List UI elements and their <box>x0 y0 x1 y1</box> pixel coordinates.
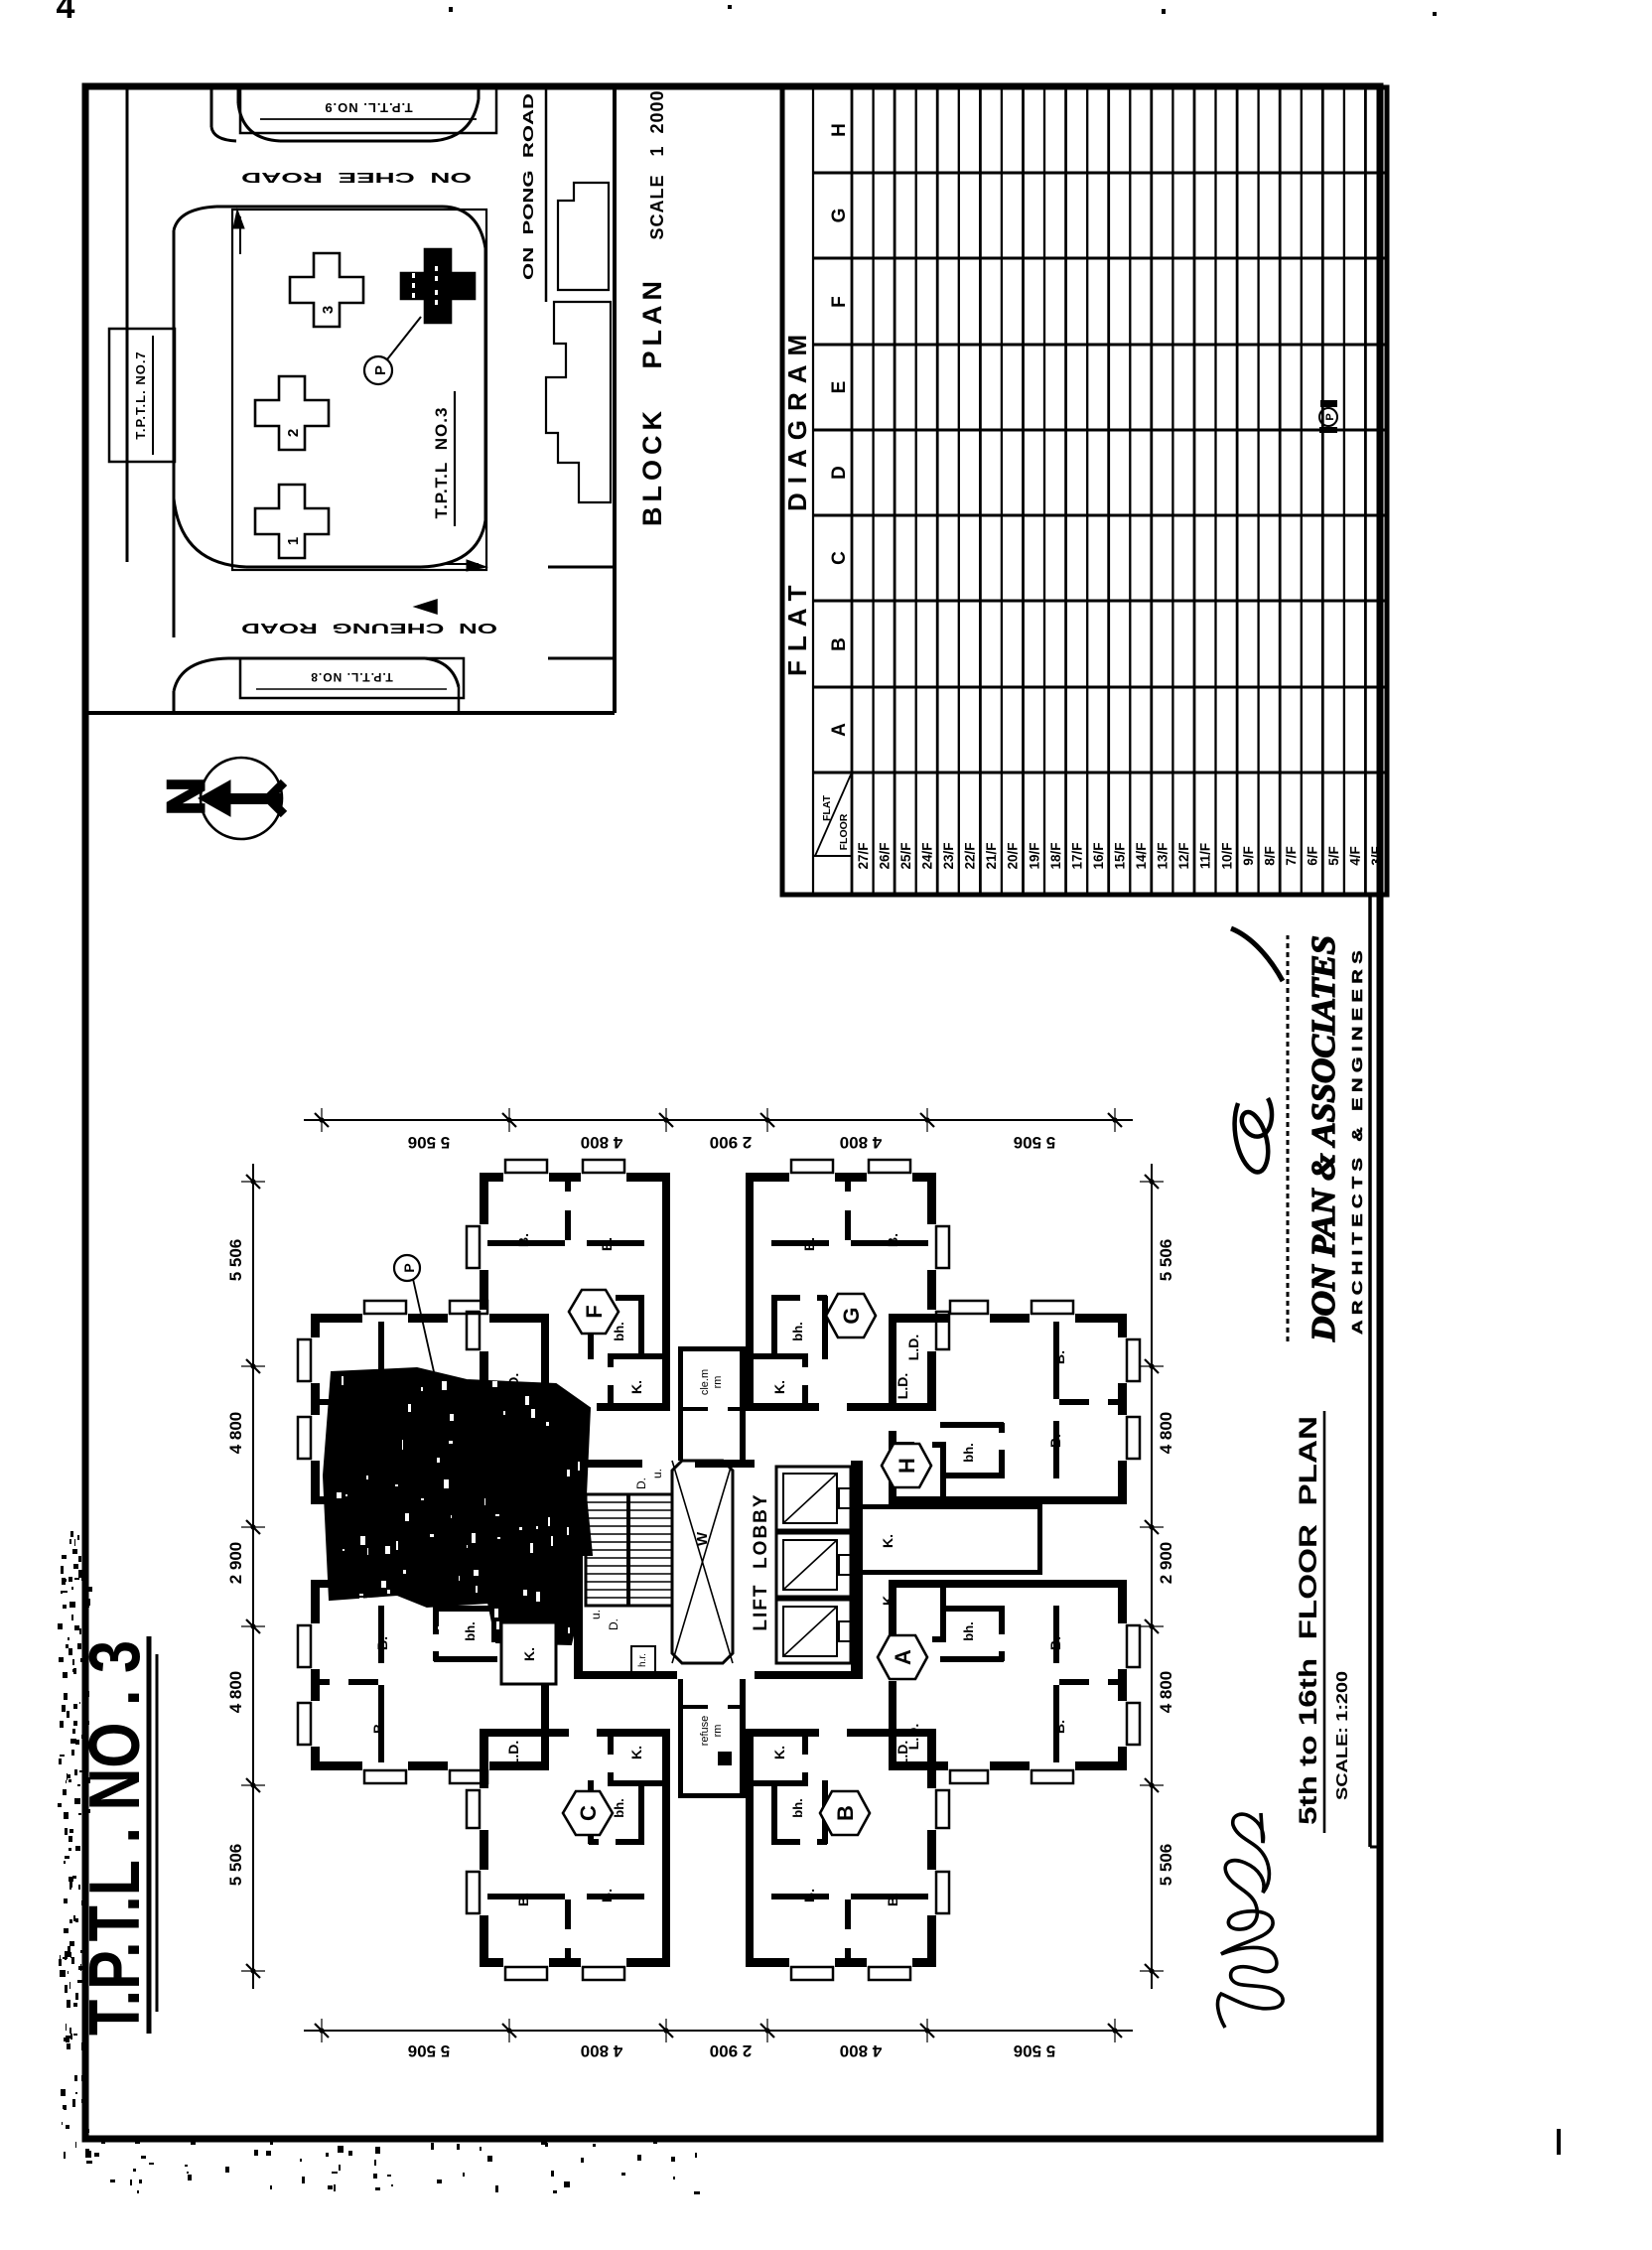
svg-text:K.: K. <box>521 1647 537 1661</box>
svg-text:14/F: 14/F <box>1134 842 1149 869</box>
svg-text:SCALE: 1:200: SCALE: 1:200 <box>1334 1671 1351 1800</box>
svg-text:B.: B. <box>801 1889 817 1902</box>
svg-text:5 506: 5 506 <box>226 1844 245 1887</box>
svg-text:L.D.: L.D. <box>905 1724 921 1750</box>
svg-text:4/F: 4/F <box>1348 846 1363 866</box>
svg-text:7/F: 7/F <box>1284 846 1299 866</box>
svg-text:K.: K. <box>628 1746 644 1759</box>
svg-text:K.: K. <box>628 1380 644 1394</box>
svg-text:20/F: 20/F <box>1006 842 1021 869</box>
svg-text:h.r.: h.r. <box>637 1653 648 1667</box>
svg-text:bh.: bh. <box>790 1798 805 1818</box>
svg-text:10/F: 10/F <box>1219 842 1234 869</box>
svg-text:ARCHITECTS & ENGINEERS: ARCHITECTS & ENGINEERS <box>1349 945 1366 1335</box>
svg-text:F: F <box>829 296 850 308</box>
svg-text:D.: D. <box>634 1477 648 1489</box>
svg-text:4 800: 4 800 <box>840 2041 883 2060</box>
svg-text:16/F: 16/F <box>1091 842 1106 869</box>
svg-text:u.: u. <box>650 1469 664 1478</box>
svg-text:E: E <box>829 381 850 394</box>
svg-text:8/F: 8/F <box>1262 846 1277 866</box>
svg-text:T.P.T.L. NO.8: T.P.T.L. NO.8 <box>310 670 392 684</box>
svg-text:B.: B. <box>1051 1720 1067 1734</box>
svg-text:ON PONG ROAD: ON PONG ROAD <box>520 93 537 280</box>
svg-text:P: P <box>372 365 389 375</box>
svg-text:H: H <box>895 1458 919 1474</box>
svg-text:2 900: 2 900 <box>1157 1542 1175 1585</box>
svg-text:B.: B. <box>374 1636 390 1650</box>
svg-text:23/F: 23/F <box>941 842 956 869</box>
svg-text:T.P.T.L. NO.7: T.P.T.L. NO.7 <box>133 351 148 439</box>
svg-text:22/F: 22/F <box>963 842 978 869</box>
svg-text:K.: K. <box>771 1746 787 1759</box>
svg-text:bh.: bh. <box>612 1798 626 1818</box>
svg-text:5 506: 5 506 <box>408 2041 451 2060</box>
svg-text:A: A <box>891 1649 915 1665</box>
svg-text:K.: K. <box>771 1380 787 1394</box>
svg-text:4 800: 4 800 <box>840 1133 883 1152</box>
svg-text:2 900: 2 900 <box>226 1542 245 1585</box>
svg-text:B.: B. <box>1047 1434 1063 1448</box>
svg-text:5 506: 5 506 <box>1014 2041 1056 2060</box>
svg-text:bh.: bh. <box>961 1443 976 1463</box>
svg-text:5 506: 5 506 <box>1157 1239 1175 1282</box>
svg-text:3: 3 <box>320 306 337 314</box>
svg-text:4 800: 4 800 <box>226 1412 245 1455</box>
svg-text:4: 4 <box>57 0 75 26</box>
svg-text:A: A <box>829 723 850 737</box>
svg-text:DIAGRAM: DIAGRAM <box>782 326 812 511</box>
svg-text:rm: rm <box>712 1376 724 1389</box>
svg-text:H: H <box>829 123 850 137</box>
svg-text:27/F: 27/F <box>856 842 871 869</box>
svg-text:FLAT: FLAT <box>782 577 812 677</box>
svg-text:ON CHEUNG ROAD: ON CHEUNG ROAD <box>241 620 497 636</box>
svg-text:5 506: 5 506 <box>1014 1133 1056 1152</box>
svg-text:B.: B. <box>515 1893 531 1906</box>
svg-text:24/F: 24/F <box>920 842 935 869</box>
svg-text:B.: B. <box>599 1889 615 1902</box>
svg-text:T.P.T.L. NO.9: T.P.T.L. NO.9 <box>324 100 412 115</box>
svg-text:4 800: 4 800 <box>1157 1412 1175 1455</box>
svg-text:4 800: 4 800 <box>581 1133 623 1152</box>
svg-text:B: B <box>829 637 850 651</box>
svg-text:K.: K. <box>880 1534 895 1548</box>
svg-text:B.: B. <box>801 1237 817 1251</box>
svg-text:B.: B. <box>370 1720 386 1734</box>
svg-text:BLOCK PLAN: BLOCK PLAN <box>637 276 667 526</box>
svg-text:SCALE 1 2000: SCALE 1 2000 <box>647 89 667 239</box>
svg-text:18/F: 18/F <box>1048 842 1063 869</box>
svg-text:2 900: 2 900 <box>710 2041 753 2060</box>
svg-text:B.: B. <box>599 1237 615 1251</box>
svg-text:12/F: 12/F <box>1176 842 1191 869</box>
svg-text:L.D.: L.D. <box>505 1741 521 1766</box>
svg-text:P: P <box>1324 413 1336 420</box>
svg-text:B.: B. <box>1051 1350 1067 1364</box>
svg-text:T.P.T.L . NO . 3: T.P.T.L . NO . 3 <box>75 1640 155 2036</box>
svg-text:B.: B. <box>885 1893 900 1906</box>
svg-text:cle.m: cle.m <box>699 1369 711 1395</box>
svg-text:5/F: 5/F <box>1326 846 1341 866</box>
svg-text:6/F: 6/F <box>1306 846 1320 866</box>
svg-text:FLAT: FLAT <box>821 794 833 821</box>
svg-text:LIFT LOBBY: LIFT LOBBY <box>751 1492 771 1630</box>
svg-text:bh.: bh. <box>961 1621 976 1641</box>
svg-text:ON CHEE ROAD: ON CHEE ROAD <box>241 169 472 186</box>
svg-text:F: F <box>582 1305 607 1318</box>
svg-text:5 506: 5 506 <box>1157 1844 1175 1887</box>
svg-text:u.: u. <box>589 1610 603 1619</box>
svg-text:26/F: 26/F <box>877 842 892 869</box>
svg-text:19/F: 19/F <box>1027 842 1041 869</box>
svg-text:3/F: 3/F <box>1369 846 1384 866</box>
svg-text:DON PAN & ASSOCIATES: DON PAN & ASSOCIATES <box>1306 935 1342 1342</box>
svg-text:13/F: 13/F <box>1156 842 1170 869</box>
svg-text:4 800: 4 800 <box>226 1671 245 1714</box>
svg-text:W: W <box>694 1531 711 1546</box>
svg-text:9/F: 9/F <box>1241 846 1256 866</box>
svg-text:T.P.T.L NO.3: T.P.T.L NO.3 <box>432 407 451 519</box>
svg-text:B: B <box>833 1805 858 1821</box>
svg-text:FLOOR: FLOOR <box>838 813 850 850</box>
svg-text:2: 2 <box>285 429 302 437</box>
svg-text:bh.: bh. <box>463 1621 478 1641</box>
svg-text:rm: rm <box>712 1725 724 1738</box>
svg-text:D.: D. <box>607 1618 620 1630</box>
svg-text:5 506: 5 506 <box>408 1133 451 1152</box>
svg-text:17/F: 17/F <box>1069 842 1084 869</box>
svg-text:4 800: 4 800 <box>1157 1671 1175 1714</box>
svg-text:C: C <box>576 1805 601 1821</box>
svg-text:D: D <box>829 466 850 480</box>
svg-text:B.: B. <box>515 1233 531 1247</box>
svg-text:bh.: bh. <box>790 1322 805 1341</box>
svg-text:C: C <box>829 551 850 565</box>
svg-text:P: P <box>401 1263 417 1272</box>
svg-text:B.: B. <box>885 1233 900 1247</box>
svg-text:L.D.: L.D. <box>905 1335 921 1360</box>
svg-text:5th to 16th FLOOR PLAN: 5th to 16th FLOOR PLAN <box>1295 1416 1322 1825</box>
svg-text:L.D.: L.D. <box>895 1373 910 1399</box>
svg-text:5 506: 5 506 <box>226 1239 245 1282</box>
svg-text:bh.: bh. <box>612 1322 626 1341</box>
svg-text:G: G <box>829 209 850 223</box>
svg-text:K.: K. <box>880 1592 895 1606</box>
svg-text:2 900: 2 900 <box>710 1133 753 1152</box>
svg-text:B.: B. <box>1047 1636 1063 1650</box>
svg-text:15/F: 15/F <box>1113 842 1128 869</box>
svg-text:4 800: 4 800 <box>581 2041 623 2060</box>
svg-text:1: 1 <box>285 537 302 545</box>
svg-text:11/F: 11/F <box>1198 843 1213 869</box>
svg-text:refuse: refuse <box>699 1716 711 1747</box>
svg-text:G: G <box>839 1307 864 1324</box>
svg-text:21/F: 21/F <box>984 842 999 869</box>
svg-text:25/F: 25/F <box>898 842 913 869</box>
